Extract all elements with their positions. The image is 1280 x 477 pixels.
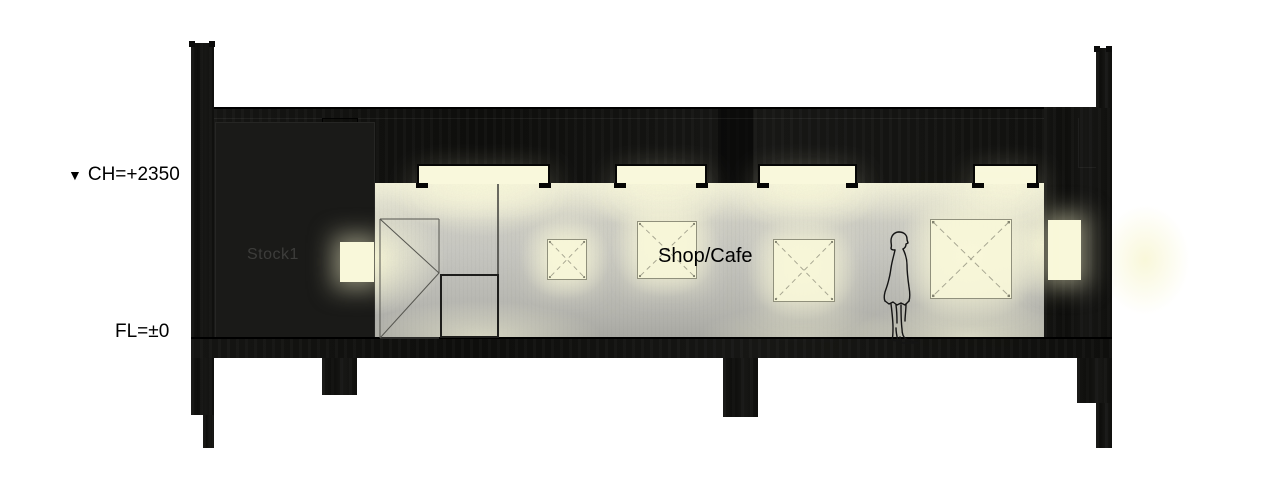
wall-panel-x-3 <box>773 239 835 302</box>
level-marker-triangle-icon: ▼ <box>68 168 82 182</box>
floor-slab <box>191 337 1112 358</box>
left-column-cap-left <box>189 41 195 47</box>
right-column-cap-right <box>1106 46 1112 52</box>
exterior-light-glow <box>1100 205 1190 315</box>
standing-person-icon <box>879 230 925 344</box>
ceiling-light-1 <box>417 164 550 184</box>
stock-room <box>215 122 375 340</box>
left-column-footing <box>203 415 214 448</box>
left-column-cap-right <box>209 41 215 47</box>
right-column-footing <box>1096 403 1112 448</box>
foundation-pier-right <box>723 356 758 417</box>
right-column-cap-left <box>1094 46 1100 52</box>
wall-panel-x-4 <box>930 219 1012 299</box>
right-column <box>1096 48 1112 108</box>
ceiling-light-2 <box>615 164 707 184</box>
stock-room-label: Stock1 <box>247 246 299 264</box>
ceiling-light-3 <box>758 164 857 184</box>
ceiling-light-4 <box>973 164 1038 184</box>
ceiling-height-annotation: ▼ CH=+2350 <box>68 164 180 186</box>
ceiling-height-label: CH=+2350 <box>88 164 180 186</box>
foundation-pier-left <box>322 356 357 395</box>
wall-niche-left <box>340 242 374 282</box>
shop-cafe-room-label: Shop/Cafe <box>658 245 753 268</box>
wall-panel-x-1 <box>547 239 587 280</box>
right-wall-footing <box>1077 356 1112 403</box>
section-drawing-canvas: ▼ CH=+2350 FL=±0 Stock1 Shop/Cafe <box>0 0 1280 477</box>
floor-level-label: FL=±0 <box>115 321 169 343</box>
right-wall-step-line-h <box>1078 167 1096 168</box>
wall-niche-right <box>1048 220 1081 280</box>
right-wall-step-line-v <box>1078 118 1079 167</box>
left-column <box>191 43 214 415</box>
